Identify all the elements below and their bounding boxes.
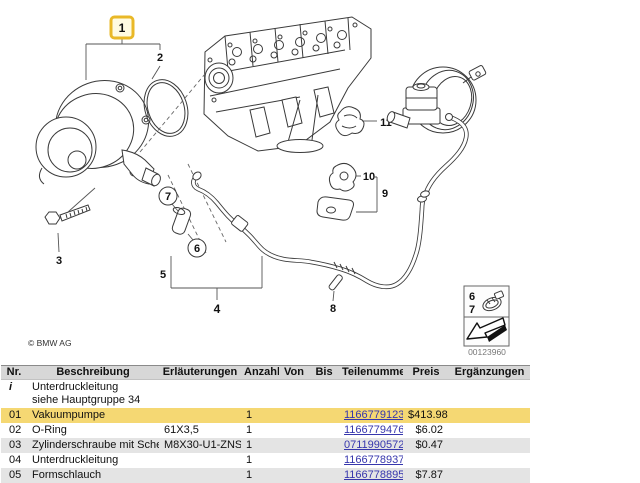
col-header-anzahl: Anzahl (241, 366, 279, 380)
row-to (309, 380, 339, 409)
row-part-number: 11667788959 (339, 468, 403, 483)
diagram-image-number: 00123960 (468, 347, 506, 357)
row-price: $6.02 (403, 423, 449, 438)
callout-4[interactable]: 4 (214, 302, 221, 316)
part-number-link[interactable]: 11667791232 (344, 409, 403, 421)
row-from (279, 453, 309, 468)
row-description: Unterdruckleitungsiehe Hauptgruppe 34 (27, 380, 159, 409)
table-row: 04Unterdruckleitung111667789373 (1, 453, 530, 468)
row-nr: 01 (1, 408, 27, 423)
rubber-mount-drawing (336, 107, 364, 136)
row-quantity: 1 (241, 468, 279, 483)
table-row: iUnterdruckleitungsiehe Hauptgruppe 34 (1, 380, 530, 409)
row-description: Unterdruckleitung (27, 453, 159, 468)
row-part-number (339, 380, 403, 409)
bracket-plate-drawing (317, 197, 354, 220)
col-header-beschreibung: Beschreibung (27, 366, 159, 380)
holder-clamp-drawing (329, 163, 356, 191)
row-from (279, 438, 309, 453)
row-price (403, 453, 449, 468)
col-header-bis: Bis (309, 366, 339, 380)
row-quantity: 1 (241, 453, 279, 468)
row-description: Formschlauch (27, 468, 159, 483)
legend-label-7: 7 (469, 304, 475, 316)
row-nr: 02 (1, 423, 27, 438)
row-supplements (449, 380, 530, 409)
legend-box: 6 7 (464, 286, 509, 346)
col-header-teilenummer: Teilenummer (339, 366, 403, 380)
row-notes (159, 408, 241, 423)
row-quantity: 1 (241, 438, 279, 453)
table-row: 02O-Ring61X3,5111667794767$6.02 (1, 423, 530, 438)
parts-diagram: 1 2 3 7 6 5 4 8 11 10 (0, 0, 640, 362)
row-nr: 05 (1, 468, 27, 483)
parts-table-body: iUnterdruckleitungsiehe Hauptgruppe 3401… (1, 380, 530, 483)
row-price: $413.98 (403, 408, 449, 423)
callout-1[interactable]: 1 (119, 21, 126, 35)
row-part-number: 11667791232 (339, 408, 403, 423)
row-supplements (449, 453, 530, 468)
row-part-number: 11667789373 (339, 453, 403, 468)
row-description: Zylinderschraube mit Scheibe (27, 438, 159, 453)
row-to (309, 423, 339, 438)
brake-booster-drawing (386, 63, 487, 198)
col-header-erlaeuterungen: Erläuterungen (159, 366, 241, 380)
row-to (309, 438, 339, 453)
col-header-ergaenzungen: Ergänzungen (449, 366, 530, 380)
parts-table: Nr. Beschreibung Erläuterungen Anzahl Vo… (1, 365, 530, 483)
row-price: $7.87 (403, 468, 449, 483)
table-row: 01Vakuumpumpe111667791232$413.98 (1, 408, 530, 423)
row-quantity (241, 380, 279, 409)
legend-label-6: 6 (469, 291, 475, 303)
part-number-link[interactable]: 07119905720 (344, 439, 403, 451)
row-supplements (449, 438, 530, 453)
row-nr: i (1, 380, 27, 409)
row-from (279, 380, 309, 409)
bushing-drawing (171, 206, 192, 235)
parts-table-header: Nr. Beschreibung Erläuterungen Anzahl Vo… (1, 366, 530, 380)
row-from (279, 423, 309, 438)
callout-5[interactable]: 5 (160, 269, 166, 281)
bmw-parts-catalog-page: { "diagram": { "callouts": [ {"label":"1… (0, 0, 640, 480)
pin-drawing (328, 274, 343, 291)
row-from (279, 408, 309, 423)
row-to (309, 468, 339, 483)
callout-9[interactable]: 9 (382, 188, 388, 200)
row-quantity: 1 (241, 408, 279, 423)
row-notes (159, 453, 241, 468)
row-nr: 04 (1, 453, 27, 468)
row-supplements (449, 408, 530, 423)
part-number-link[interactable]: 11667788959 (344, 469, 403, 481)
row-notes: 61X3,5 (159, 423, 241, 438)
table-row: 05Formschlauch111667788959$7.87 (1, 468, 530, 483)
row-notes (159, 380, 241, 409)
callout-2[interactable]: 2 (157, 52, 163, 64)
col-header-von: Von (279, 366, 309, 380)
row-part-number: 07119905720 (339, 438, 403, 453)
row-price: $0.47 (403, 438, 449, 453)
col-header-nr: Nr. (1, 366, 27, 380)
callout-6[interactable]: 6 (194, 243, 200, 255)
row-nr: 03 (1, 438, 27, 453)
row-notes: M8X30-U1-ZNS3 (159, 438, 241, 453)
callout-3[interactable]: 3 (56, 255, 62, 267)
row-to (309, 408, 339, 423)
callout-7[interactable]: 7 (165, 191, 171, 203)
col-header-preis: Preis (403, 366, 449, 380)
row-part-number: 11667794767 (339, 423, 403, 438)
row-description: O-Ring (27, 423, 159, 438)
vacuum-pipe-drawing (191, 170, 427, 286)
row-price (403, 380, 449, 409)
bmw-copyright: © BMW AG (28, 338, 72, 348)
row-quantity: 1 (241, 423, 279, 438)
row-to (309, 453, 339, 468)
row-supplements (449, 468, 530, 483)
row-description: Vakuumpumpe (27, 408, 159, 423)
bolt-drawing (45, 188, 95, 224)
row-notes (159, 468, 241, 483)
vacuum-pump-drawing (36, 68, 162, 188)
callout-8[interactable]: 8 (330, 303, 336, 315)
part-number-link[interactable]: 11667789373 (344, 454, 403, 466)
table-row: 03Zylinderschraube mit ScheibeM8X30-U1-Z… (1, 438, 530, 453)
part-number-link[interactable]: 11667794767 (344, 424, 403, 436)
row-supplements (449, 423, 530, 438)
row-from (279, 468, 309, 483)
